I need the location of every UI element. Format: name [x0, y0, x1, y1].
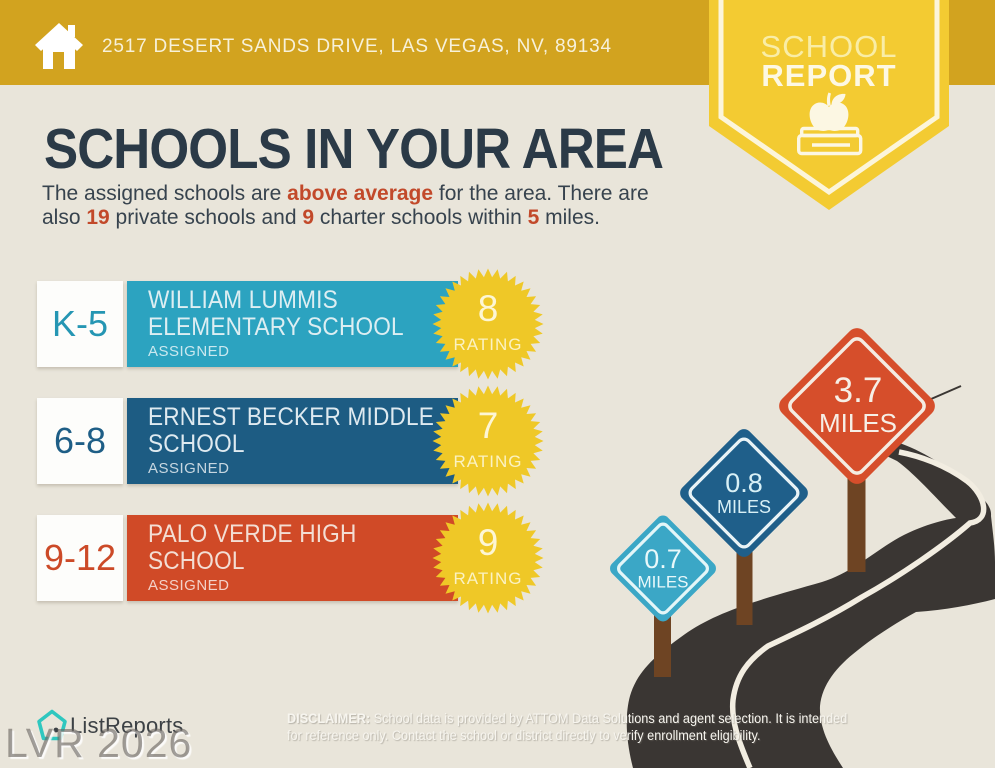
svg-text:MILES: MILES	[819, 408, 897, 438]
svg-text:0.8: 0.8	[725, 468, 763, 498]
svg-text:3.7: 3.7	[834, 371, 883, 410]
svg-text:0.7: 0.7	[644, 544, 682, 574]
svg-text:MILES: MILES	[717, 497, 771, 517]
svg-text:REPORT: REPORT	[761, 58, 896, 93]
svg-text:MILES: MILES	[637, 573, 688, 592]
